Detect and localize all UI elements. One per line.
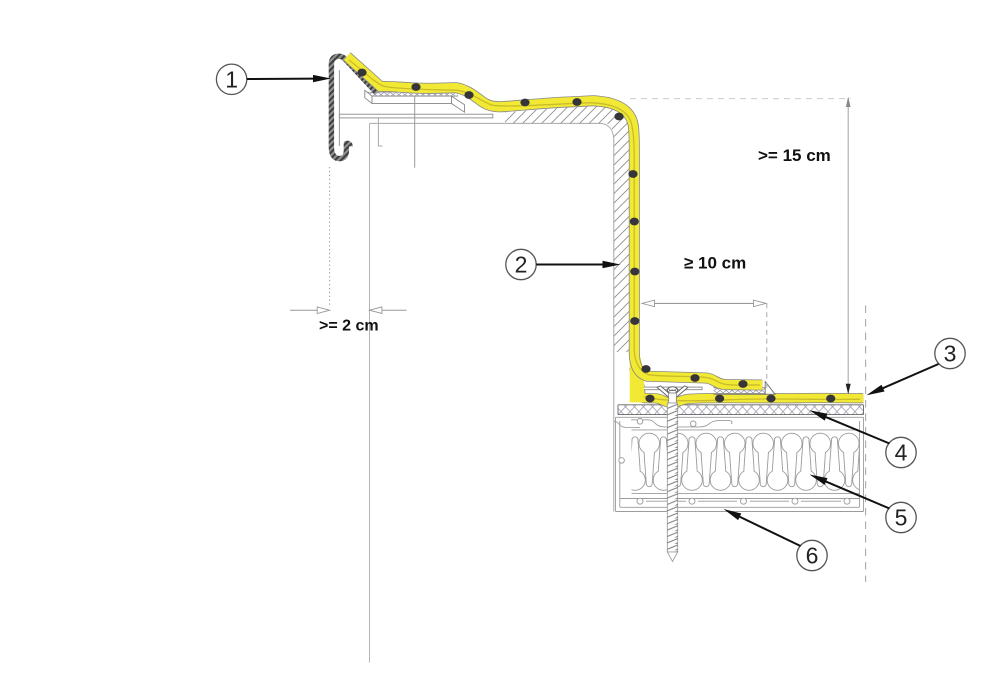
svg-text:1: 1 (225, 66, 238, 92)
svg-text:4: 4 (895, 440, 908, 466)
svg-text:5: 5 (895, 505, 908, 531)
svg-text:>= 2 cm: >= 2 cm (319, 318, 379, 335)
svg-text:2: 2 (515, 252, 528, 278)
svg-text:6: 6 (806, 543, 819, 569)
svg-text:>= 15 cm: >= 15 cm (758, 146, 831, 165)
svg-text:≥ 10 cm: ≥ 10 cm (684, 253, 746, 272)
svg-text:3: 3 (944, 341, 957, 367)
